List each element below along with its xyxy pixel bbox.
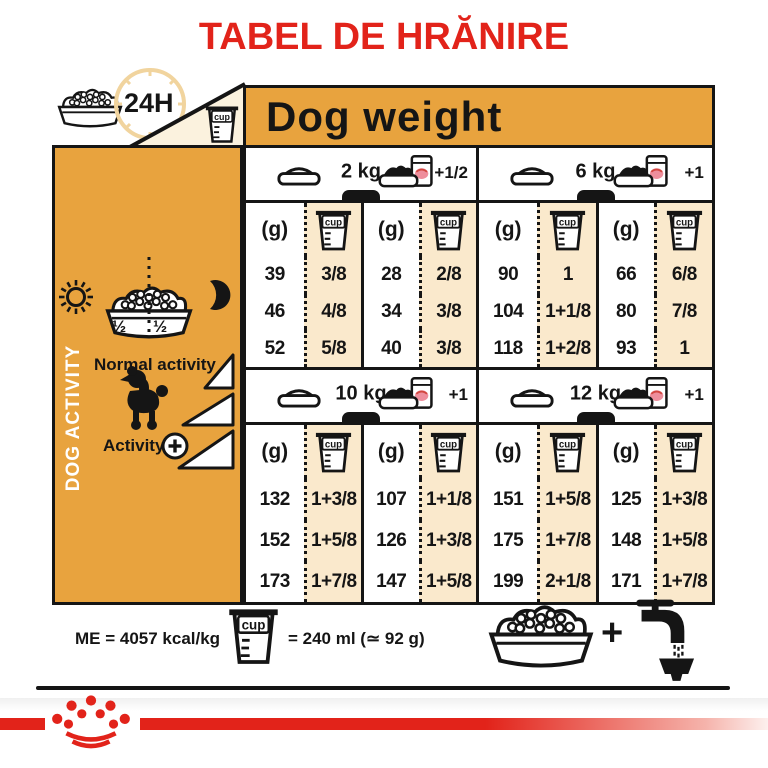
cups-value: 1+3/8 (654, 479, 712, 520)
grams-value: 175 (479, 520, 537, 561)
grams-value: 171 (596, 561, 654, 602)
cup-icon (430, 430, 467, 475)
cups-value: 5/8 (304, 330, 362, 367)
grams-value: 80 (596, 294, 654, 331)
metabolizable-energy-label: ME = 4057 kcal/kg (75, 629, 220, 649)
weight-section-12kg: 12 kg +1 (g) (g) 151 1+5/8 125 1+3/8 175… (479, 370, 712, 602)
cups-value: 2/8 (419, 257, 477, 294)
weight-section-10kg: 10 kg +1 (g) (g) 132 1+3/8 107 1+1/8 152… (246, 370, 479, 602)
wet-food-extra-label: +1/2 (434, 163, 468, 183)
feeding-grid: (g) (g) 151 1+5/8 125 1+3/8 175 1+7/8 14… (479, 425, 712, 602)
grams-value: 40 (361, 330, 419, 367)
activity-level-2-triangle (183, 394, 233, 425)
cup-icon (666, 430, 703, 475)
grams-value: 107 (361, 479, 419, 520)
brand-bar-right (140, 718, 768, 730)
cup-icon (549, 208, 586, 253)
cup-column-header (419, 425, 477, 479)
grams-value: 199 (479, 561, 537, 602)
cups-value: 6/8 (654, 257, 712, 294)
cups-value: 1+1/8 (419, 479, 477, 520)
feeding-grid: (g) (g) 90 1 66 6/8 104 1+1/8 80 7/8 118… (479, 203, 712, 367)
cup-icon (430, 208, 467, 253)
cups-value: 1+7/8 (537, 520, 595, 561)
weight-header: 10 kg +1 (246, 370, 476, 425)
activity-label: Activity (103, 436, 164, 456)
wet-food-extra-label: +1 (684, 385, 703, 405)
empty-bowl-icon (276, 161, 322, 188)
weight-header: 12 kg +1 (479, 370, 712, 425)
wet-food-extra-label: +1 (449, 385, 468, 405)
cups-value: 1+7/8 (654, 561, 712, 602)
cup-column-header (654, 203, 712, 257)
weight-label: 6 kg (575, 161, 615, 184)
wet-food-extra-label: +1 (684, 163, 703, 183)
cups-value: 1+5/8 (304, 520, 362, 561)
cups-value: 1+5/8 (537, 479, 595, 520)
dog-weight-label: Dog weight (246, 93, 502, 141)
half-portion-right-label: ½ (153, 317, 167, 337)
cups-value: 1+5/8 (419, 561, 477, 602)
moon-icon (210, 280, 230, 310)
divider-line (36, 686, 730, 690)
grams-value: 152 (246, 520, 304, 561)
cup-icon (315, 430, 352, 475)
feeding-table: 2 kg +1/2 (g) (g) 39 3/8 28 2/8 46 4/8 3… (243, 145, 715, 605)
weight-section-6kg: 6 kg +1 (g) (g) 90 1 66 6/8 104 1+1/8 80… (479, 148, 712, 370)
grams-value: 125 (596, 479, 654, 520)
cups-value: 3/8 (419, 330, 477, 367)
empty-bowl-icon (276, 383, 322, 410)
cup-column-header (304, 203, 362, 257)
cups-value: 1 (654, 330, 712, 367)
grams-value: 66 (596, 257, 654, 294)
water-tap-icon (626, 598, 696, 684)
grams-header: (g) (479, 203, 537, 257)
half-portion-left-label: ½ (112, 317, 126, 337)
kibble-bowl-icon (478, 601, 604, 673)
grams-value: 39 (246, 257, 304, 294)
feeding-grid: (g) (g) 132 1+3/8 107 1+1/8 152 1+5/8 12… (246, 425, 476, 602)
grams-value: 90 (479, 257, 537, 294)
feeding-grid: (g) (g) 39 3/8 28 2/8 46 4/8 34 3/8 52 5… (246, 203, 476, 367)
weight-header: 2 kg +1/2 (246, 148, 476, 203)
bowl-pouch-icon (378, 376, 435, 417)
grams-header: (g) (361, 425, 419, 479)
sun-icon (59, 280, 93, 314)
grams-header: (g) (361, 203, 419, 257)
weight-tab (342, 190, 380, 203)
cup-column-header (537, 425, 595, 479)
cups-value: 1+3/8 (304, 479, 362, 520)
grams-header: (g) (246, 203, 304, 257)
empty-bowl-icon (509, 383, 555, 410)
grams-value: 132 (246, 479, 304, 520)
bowl-pouch-icon (613, 376, 670, 417)
cups-value: 1+3/8 (419, 520, 477, 561)
dog-weight-header: Dog weight (243, 85, 715, 148)
grams-value: 28 (361, 257, 419, 294)
poodle-icon (120, 366, 168, 430)
weight-tab (577, 190, 615, 203)
grams-value: 118 (479, 330, 537, 367)
grams-value: 148 (596, 520, 654, 561)
grams-header: (g) (246, 425, 304, 479)
cup-icon (666, 208, 703, 253)
normal-activity-label: Normal activity (94, 355, 216, 375)
empty-bowl-icon (509, 161, 555, 188)
grams-header: (g) (596, 203, 654, 257)
cup-column-header (654, 425, 712, 479)
weight-tab (577, 412, 615, 425)
grams-value: 104 (479, 294, 537, 331)
brand-bar-left (0, 718, 45, 730)
bowl-pouch-icon (613, 154, 670, 195)
cup-column-header (537, 203, 595, 257)
cups-value: 4/8 (304, 294, 362, 331)
cups-value: 3/8 (304, 257, 362, 294)
cups-value: 3/8 (419, 294, 477, 331)
cups-value: 1+7/8 (304, 561, 362, 602)
grams-header: (g) (596, 425, 654, 479)
weight-tab (342, 412, 380, 425)
cup-equivalence-label: = 240 ml (≃ 92 g) (288, 629, 425, 649)
cup-column-header (419, 203, 477, 257)
page-title: TABEL DE HRĂNIRE (0, 16, 768, 59)
cup-icon (315, 208, 352, 253)
grams-value: 147 (361, 561, 419, 602)
cup-column-header (304, 425, 362, 479)
grams-header: (g) (479, 425, 537, 479)
cup-icon (549, 430, 586, 475)
bowl-pouch-icon (378, 154, 435, 195)
grams-value: 151 (479, 479, 537, 520)
cups-value: 2+1/8 (537, 561, 595, 602)
royal-canin-crown-logo (48, 694, 134, 750)
weight-label: 2 kg (341, 161, 381, 184)
grams-value: 34 (361, 294, 419, 331)
plus-circle-icon (163, 434, 187, 458)
weight-header: 6 kg +1 (479, 148, 712, 203)
grams-value: 52 (246, 330, 304, 367)
feeding-table-page: TABEL DE HRĂNIRE 24H Dog weight (0, 0, 768, 768)
dog-activity-vertical-label: DOG ACTIVITY (63, 343, 85, 493)
cups-value: 1 (537, 257, 595, 294)
grams-value: 46 (246, 294, 304, 331)
cup-icon (205, 104, 239, 145)
grams-value: 93 (596, 330, 654, 367)
grams-value: 126 (361, 520, 419, 561)
cups-value: 1+2/8 (537, 330, 595, 367)
grams-value: 173 (246, 561, 304, 602)
weight-section-2kg: 2 kg +1/2 (g) (g) 39 3/8 28 2/8 46 4/8 3… (246, 148, 479, 370)
cups-value: 1+5/8 (654, 520, 712, 561)
cup-icon (228, 605, 279, 668)
cups-value: 7/8 (654, 294, 712, 331)
cups-value: 1+1/8 (537, 294, 595, 331)
plus-sign: + (601, 612, 623, 655)
